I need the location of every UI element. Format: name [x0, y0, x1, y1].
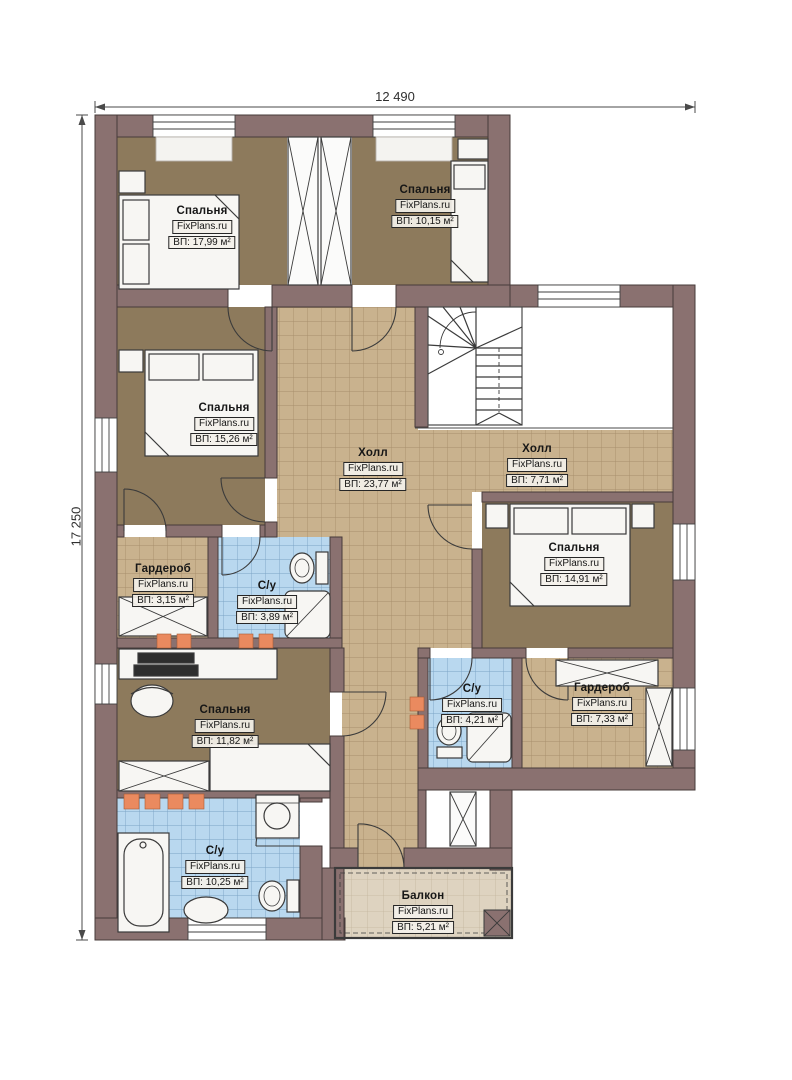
room-label-hall-main: Холл FixPlans.ru ВП: 23,77 м² — [339, 447, 406, 491]
nightstand — [119, 350, 143, 372]
room-brand: FixPlans.ru — [195, 719, 255, 733]
room-name: Спальня — [192, 704, 259, 717]
room-area: ВП: 11,82 м² — [192, 735, 259, 749]
room-label-bedroom-3: Спальня FixPlans.ru ВП: 15,26 м² — [190, 402, 257, 446]
room-name: Балкон — [392, 890, 454, 903]
floor-plan-page: 12 490 17 250 Спальня FixPlans.ru ВП: 17… — [0, 0, 792, 1080]
room-label-balcony: Балкон FixPlans.ru ВП: 5,21 м² — [392, 890, 454, 934]
room-name: Спальня — [391, 184, 458, 197]
room-brand: FixPlans.ru — [237, 595, 297, 609]
room-name: С/у — [441, 683, 503, 696]
room-label-wardrobe-1: Гардероб FixPlans.ru ВП: 3,15 м² — [132, 563, 194, 607]
sink — [184, 897, 228, 923]
room-area: ВП: 14,91 м² — [540, 573, 607, 587]
room-brand: FixPlans.ru — [194, 417, 254, 431]
room-brand: FixPlans.ru — [185, 860, 245, 874]
room-name: Спальня — [540, 542, 607, 555]
room-name: Спальня — [190, 402, 257, 415]
room-brand: FixPlans.ru — [572, 697, 632, 711]
staircase — [415, 307, 673, 428]
room-label-bedroom-4: Спальня FixPlans.ru ВП: 14,91 м² — [540, 542, 607, 586]
room-name: С/у — [236, 580, 298, 593]
room-area: ВП: 10,15 м² — [391, 215, 458, 229]
room-label-bathroom-2: С/у FixPlans.ru ВП: 4,21 м² — [441, 683, 503, 727]
room-area: ВП: 3,15 м² — [132, 594, 194, 608]
room-name: Гардероб — [571, 682, 633, 695]
room-area: ВП: 3,89 м² — [236, 611, 298, 625]
room-area: ВП: 7,33 м² — [571, 713, 633, 727]
room-label-hall-2: Холл FixPlans.ru ВП: 7,71 м² — [506, 443, 568, 487]
room-brand: FixPlans.ru — [343, 462, 403, 476]
toilet — [437, 747, 462, 758]
room-brand: FixPlans.ru — [507, 458, 567, 472]
room-name: Холл — [506, 443, 568, 456]
washing-machine — [256, 795, 299, 838]
room-name: Гардероб — [132, 563, 194, 576]
room-area: ВП: 4,21 м² — [441, 714, 503, 728]
toilet — [287, 880, 299, 912]
room-area: ВП: 5,21 м² — [392, 921, 454, 935]
nightstand — [119, 171, 145, 193]
room-name: С/у — [181, 845, 248, 858]
room-area: ВП: 23,77 м² — [339, 478, 406, 492]
room-brand: FixPlans.ru — [395, 199, 455, 213]
bed — [210, 744, 330, 791]
room-brand: FixPlans.ru — [172, 220, 232, 234]
nightstand — [486, 504, 508, 528]
room-label-bedroom-2: Спальня FixPlans.ru ВП: 10,15 м² — [391, 184, 458, 228]
room-label-bathroom-3: С/у FixPlans.ru ВП: 10,25 м² — [181, 845, 248, 889]
room-area: ВП: 15,26 м² — [190, 433, 257, 447]
room-area: ВП: 17,99 м² — [168, 236, 235, 250]
dimension-width-label: 12 490 — [375, 89, 415, 104]
room-brand: FixPlans.ru — [133, 578, 193, 592]
office-chair — [131, 685, 173, 717]
printer-icon — [138, 653, 194, 663]
room-label-bathroom-1: С/у FixPlans.ru ВП: 3,89 м² — [236, 580, 298, 624]
room-brand: FixPlans.ru — [442, 698, 502, 712]
room-label-bedroom-5: Спальня FixPlans.ru ВП: 11,82 м² — [192, 704, 259, 748]
room-area: ВП: 7,71 м² — [506, 474, 568, 488]
room-brand: FixPlans.ru — [393, 905, 453, 919]
room-name: Спальня — [168, 205, 235, 218]
toilet — [316, 552, 328, 584]
room-label-bedroom-1: Спальня FixPlans.ru ВП: 17,99 м² — [168, 205, 235, 249]
room-label-wardrobe-2: Гардероб FixPlans.ru ВП: 7,33 м² — [571, 682, 633, 726]
room-brand: FixPlans.ru — [544, 557, 604, 571]
nightstand — [458, 139, 488, 159]
room-name: Холл — [339, 447, 406, 460]
room-area: ВП: 10,25 м² — [181, 876, 248, 890]
nightstand — [632, 504, 654, 528]
dimension-height-label: 17 250 — [69, 495, 84, 559]
